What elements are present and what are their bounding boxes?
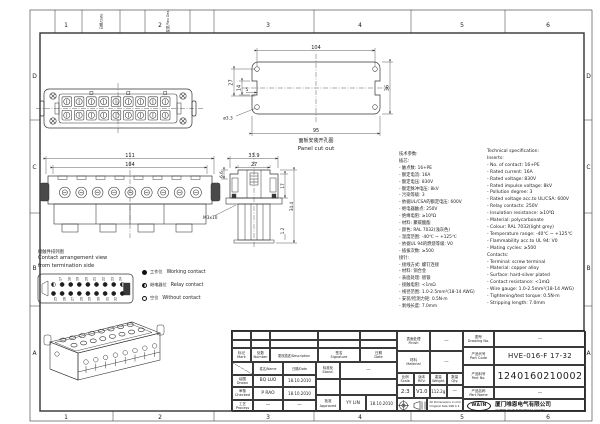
legend-relay: 继电器位 Relay contact xyxy=(142,282,206,288)
process-label: 工艺 Process xyxy=(232,400,253,413)
corner-date-label: 日期/Date xyxy=(99,13,104,29)
list-item: 22 xyxy=(101,274,105,283)
list-item: - 触点数: 16+PE xyxy=(399,166,489,173)
isometric-view xyxy=(44,322,164,380)
panel-caption-cn: 面板安装开孔图 xyxy=(298,137,333,144)
row-label: B xyxy=(32,265,36,272)
list-item: 28 xyxy=(79,295,83,304)
drawing-no-value: — xyxy=(494,331,586,347)
spec-en-title: Technical specification: xyxy=(487,149,587,156)
row-label: A xyxy=(586,350,591,357)
arrangement-legend: 工作位 Working contact 继电器位 Relay contact 空… xyxy=(142,269,206,308)
weight-label: 重量 Weight xyxy=(430,373,447,385)
arrangement-caption: 接触件排列图 Contact arrangement view from ter… xyxy=(38,249,107,270)
list-item: - 额定电压: 830V xyxy=(399,180,489,187)
legend-en: Working contact xyxy=(167,270,206,275)
list-item: - 线径范围: 1.0-2.5mm²(18-14 AWG) xyxy=(399,290,489,297)
list-item: - 材料: 聚碳酸酯 xyxy=(399,221,489,228)
list-item: - Flammability acc.to UL 94: V0 xyxy=(487,239,587,246)
list-item: 21 xyxy=(93,274,97,283)
qty-label: 数量 Qty. xyxy=(447,373,464,385)
rev-cell xyxy=(232,331,251,340)
drawn-date: 18.10.2010 xyxy=(283,375,316,388)
rev-cell xyxy=(360,331,397,340)
dim-33-9: 33.9 xyxy=(248,153,259,159)
col-label: 6 xyxy=(546,414,550,421)
date-header: 日期 Date xyxy=(360,348,397,362)
list-item: - 额定电流: 16A xyxy=(399,173,489,180)
list-item: 25 xyxy=(53,295,57,304)
dim-95: 95 xyxy=(313,128,319,134)
dim-27: 27 xyxy=(251,162,257,168)
diagonal-cell xyxy=(232,362,253,375)
legend-cn: 工作位 xyxy=(150,269,163,275)
rev-cell xyxy=(270,340,318,349)
list-item: - Colour: RAL 7032(light grey) xyxy=(487,225,587,232)
list-item: - 温度范围: -40℃ ~ +125℃ xyxy=(399,235,489,242)
empty-cell xyxy=(316,379,340,396)
spec-cn-inserts-list: - 触点数: 16+PE- 额定电流: 16A- 额定电压: 830V- 额定脉… xyxy=(399,166,489,256)
part-name-label: 产品名称 Part Name xyxy=(463,387,494,399)
list-item: 26 xyxy=(62,295,66,304)
part-name-value: — xyxy=(494,387,586,399)
list-item: - Material: polycarbonate xyxy=(487,218,587,225)
panel-caption-en: Panel cut out xyxy=(298,146,335,152)
description-header: 更改描述/Description xyxy=(270,348,318,362)
checked-name: P RAO xyxy=(253,387,283,400)
name-header: 姓名/Name xyxy=(253,362,283,375)
dimension-note: All Dimensions in mm Original Size DIN A… xyxy=(427,398,463,412)
legend-without: 空位 Without contact xyxy=(142,295,206,301)
spec-cn-inserts-heading: 插芯: xyxy=(399,159,489,166)
side-view: 111 104 xyxy=(40,152,220,238)
legend-en: Without contact xyxy=(162,296,200,301)
approved-label: 批准 Approved xyxy=(316,395,340,412)
spec-en-contacts-heading: Contacts: xyxy=(487,253,587,260)
checked-label: 审核 Checked xyxy=(232,387,253,400)
spec-cn-title: 技术参数: xyxy=(399,152,489,159)
scale-value: 2:3 xyxy=(397,385,414,398)
projection-cone-icon xyxy=(413,401,426,410)
rev-cell xyxy=(232,340,251,349)
without-contact-icon xyxy=(142,296,147,301)
rev-cell xyxy=(251,340,270,349)
list-item: - Tightening/test torque: 0.5N·m xyxy=(487,294,587,301)
list-item: 23 xyxy=(110,274,114,283)
list-item: 24 xyxy=(118,274,122,283)
company-cell: WAIN 厦门唯恩电气有限公司 XIAMEN WAIN ELECTRICAL C… xyxy=(463,399,586,412)
list-item: - Rated voltage: 830V xyxy=(487,177,587,184)
rev-label: 版本 REV. xyxy=(414,373,431,385)
list-item: - Stripping length: 7.0mm xyxy=(487,301,587,308)
rev-cell xyxy=(251,331,270,340)
list-item: 32 xyxy=(113,295,117,304)
company-name-en: XIAMEN WAIN ELECTRICAL CO.LTD xyxy=(495,408,551,412)
finish-value: — xyxy=(430,331,463,351)
corner-rev-label: 变更/Rev Des xyxy=(165,10,170,32)
scale-label: 比例 Scale xyxy=(397,373,414,385)
company-names: 厦门唯恩电气有限公司 XIAMEN WAIN ELECTRICAL CO.LTD xyxy=(495,400,551,412)
qty-value: — xyxy=(447,385,464,398)
row-label: D xyxy=(586,73,591,80)
dim-hole-dia: ø3.3 xyxy=(223,116,233,122)
list-item: - No. of contact: 16+PE xyxy=(487,163,587,170)
mark-header: 标记 Mark xyxy=(232,348,251,362)
wain-logo: WAIN xyxy=(467,401,491,411)
title-block: 标记 Mark 处数 Number 更改描述/Description 签名 Si… xyxy=(231,330,585,411)
company-name-cn: 厦门唯恩电气有限公司 xyxy=(495,400,551,408)
list-item: 20 xyxy=(84,274,88,283)
row-label: A xyxy=(32,350,37,357)
drawn-name: BQ LUO xyxy=(253,375,283,388)
arrangement-bottom-numbers: 2526272829303132 xyxy=(51,297,120,301)
part-no-value: 1240160210002 xyxy=(494,365,586,387)
dim-17: 17 xyxy=(280,183,286,189)
dim-111: 111 xyxy=(125,153,135,159)
legend-working: 工作位 Working contact xyxy=(142,269,206,275)
standard-label: 标准化 Stand. xyxy=(316,362,340,379)
list-item: - Rated current: 16A xyxy=(487,170,587,177)
list-item: 17 xyxy=(58,274,62,283)
material-value: — xyxy=(430,351,463,373)
row-label: D xyxy=(32,73,37,80)
dim-104: 104 xyxy=(311,45,321,51)
col-label: 1 xyxy=(64,414,68,421)
rev-cell xyxy=(270,331,318,340)
finish-label: 表面处理 Finish xyxy=(397,331,430,351)
legend-en: Relay contact xyxy=(171,283,204,288)
spec-cn-contacts-heading: 接针: xyxy=(399,256,489,263)
arrangement-top-numbers: 1718192021222324 xyxy=(56,277,125,281)
process-name: — xyxy=(253,400,283,413)
number-header: 处数 Number xyxy=(251,348,270,362)
drawn-label: 绘图 Drawn xyxy=(232,375,253,388)
dim-1-2: 1.2 xyxy=(280,227,286,234)
screw-label: M3x10 xyxy=(203,215,218,221)
drawing-sheet: 1 2 3 4 5 6 1 2 3 4 5 6 D C B A D C B A … xyxy=(0,0,600,424)
date-header: 日期/Date xyxy=(283,362,316,375)
panel-dimensions xyxy=(231,48,393,136)
spec-en-inserts-heading: Inserts: xyxy=(487,156,587,163)
col-label: 5 xyxy=(460,414,464,421)
rev-cell xyxy=(360,340,397,349)
arrangement-caption-en2: from termination side xyxy=(38,263,107,271)
list-item: 31 xyxy=(105,295,109,304)
part-code-value: HVE-016-F 17-32 xyxy=(494,347,586,365)
col-label: 4 xyxy=(358,22,362,29)
dim-14: 14 xyxy=(237,85,243,91)
standard-value: — xyxy=(340,362,397,379)
list-item: - Temperature range: -40℃ ~ +125℃ xyxy=(487,232,587,239)
working-contact-icon xyxy=(142,270,147,275)
signature-header: 签名 Signature xyxy=(318,348,360,362)
dim-104: 104 xyxy=(125,162,135,168)
list-item: 30 xyxy=(96,295,100,304)
dim-6-6: 6.6 xyxy=(219,171,225,178)
list-item: - 插拔次数: ≥500 xyxy=(399,249,489,256)
empty-cell xyxy=(340,379,397,396)
rev-cell xyxy=(318,340,360,349)
legend-cn: 空位 xyxy=(150,295,158,301)
checked-date: 18.10.2010 xyxy=(283,387,316,400)
row-label: B xyxy=(586,265,590,272)
approved-name: YY LIN xyxy=(340,395,366,412)
col-label: 5 xyxy=(460,22,464,29)
arrangement-caption-en1: Contact arrangement view xyxy=(38,255,107,263)
rev-cell xyxy=(318,331,360,340)
spec-column-en: Technical specification: Inserts: - No. … xyxy=(487,149,587,308)
list-item: - Mating cycles: ≥500 xyxy=(487,246,587,253)
list-item: - 颜色: RAL 7032(浅灰色) xyxy=(399,228,489,235)
dim-27: 27 xyxy=(229,79,235,85)
list-item: - 依据UL 94的燃烧等级: V0 xyxy=(399,242,489,249)
list-item: - Wire gauge: 1.0-2.5mm²(18-14 AWG) xyxy=(487,287,587,294)
row-label: C xyxy=(586,164,590,171)
spec-en-contacts-list: - Terminal: screw terminal- Material: co… xyxy=(487,260,587,308)
part-no-label: 产品料号 Part No. xyxy=(463,365,494,387)
col-label: 2 xyxy=(158,22,162,29)
approved-date: 18.10.2010 xyxy=(366,395,397,412)
dim-36: 36 xyxy=(385,85,391,91)
spec-column-cn: 技术参数: 插芯: - 触点数: 16+PE- 额定电流: 16A- 额定电压:… xyxy=(399,152,489,311)
col-label: 3 xyxy=(266,414,270,421)
spec-cn-contacts-list: - 接线方式: 螺钉连接- 材料: 铜合金- 表面处理: 镀银- 接触电阻: <… xyxy=(399,263,489,311)
col-label: 2 xyxy=(158,414,162,421)
col-label: 4 xyxy=(358,414,362,421)
process-date: — xyxy=(283,400,316,413)
weight-value: 112.2g xyxy=(430,385,447,398)
list-item: - 剥线长度: 7.0mm xyxy=(399,304,489,311)
material-label: 材料 Material xyxy=(397,351,430,373)
list-item: 18 xyxy=(67,274,71,283)
row-label: C xyxy=(32,164,36,171)
projection-symbols xyxy=(397,398,427,412)
spec-en-inserts-list: - No. of contact: 16+PE- Rated current: … xyxy=(487,163,587,253)
part-code-label: 产品代号 Part Code xyxy=(463,347,494,365)
panel-cutout-view: 104 95 36 27 14 5 ø3.3 面板安装开孔图 Panel cut… xyxy=(223,45,393,152)
col-label: 1 xyxy=(64,22,68,29)
list-item: 29 xyxy=(88,295,92,304)
col-label: 6 xyxy=(546,22,550,29)
arrangement-contacts xyxy=(51,282,124,295)
list-item: 19 xyxy=(75,274,79,283)
dim-34-4: 34.4 xyxy=(289,201,295,211)
drawing-no-label: 图号 Drawing No. xyxy=(463,331,494,347)
first-angle-projection-icon xyxy=(398,400,409,411)
relay-contact-icon xyxy=(142,283,147,288)
dim-5: 5 xyxy=(246,87,249,93)
col-label: 3 xyxy=(266,22,270,29)
legend-cn: 继电器位 xyxy=(150,282,167,288)
list-item: - 安装/检测力矩: 0.5N·m xyxy=(399,297,489,304)
list-item: 27 xyxy=(70,295,74,304)
rev-value: V1.0 xyxy=(414,385,431,398)
front-view xyxy=(36,83,204,134)
